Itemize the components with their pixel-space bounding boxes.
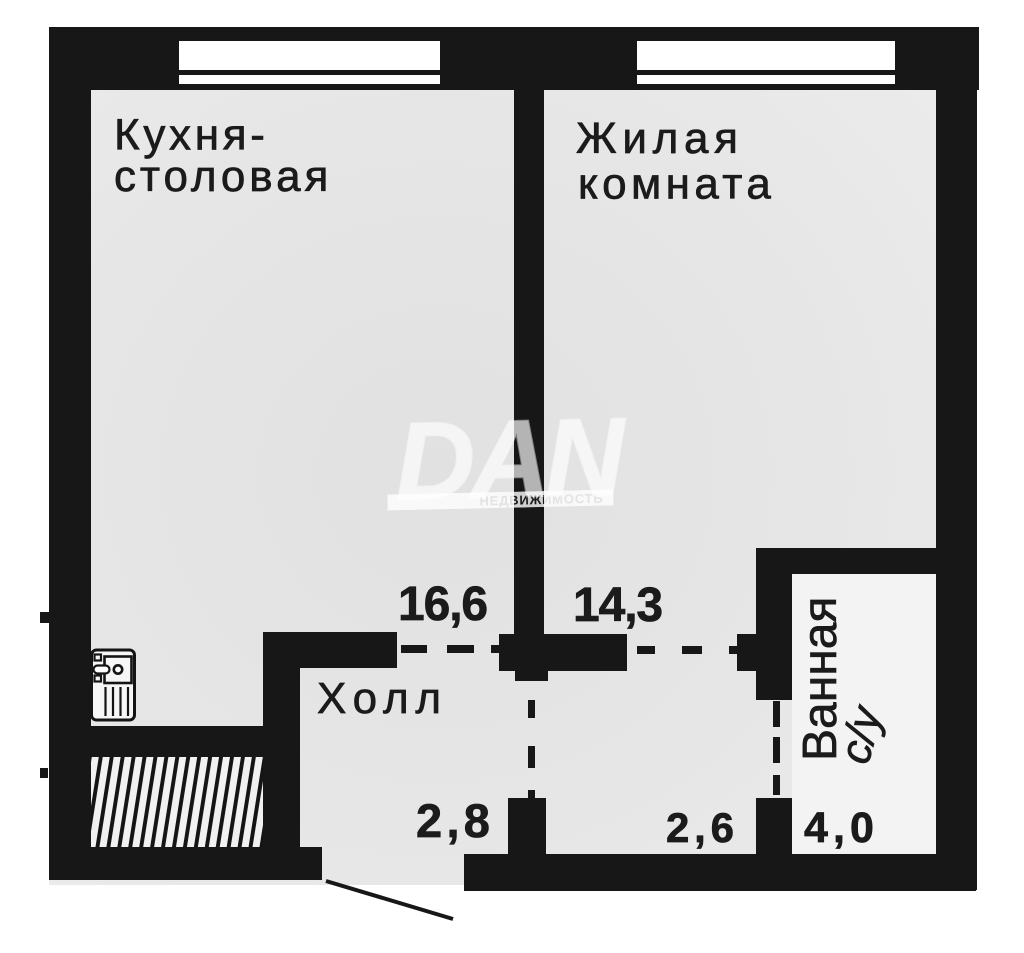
svg-text:комната: комната — [578, 160, 775, 209]
svg-text:2,8: 2,8 — [416, 794, 494, 847]
svg-text:4,0: 4,0 — [804, 804, 879, 852]
svg-text:Холл: Холл — [317, 674, 448, 723]
svg-text:2,6: 2,6 — [666, 804, 739, 851]
svg-text:Жилая: Жилая — [576, 114, 744, 163]
svg-text:16,6: 16,6 — [398, 578, 487, 631]
svg-text:14,3: 14,3 — [573, 579, 662, 632]
svg-text:столовая: столовая — [114, 152, 332, 201]
